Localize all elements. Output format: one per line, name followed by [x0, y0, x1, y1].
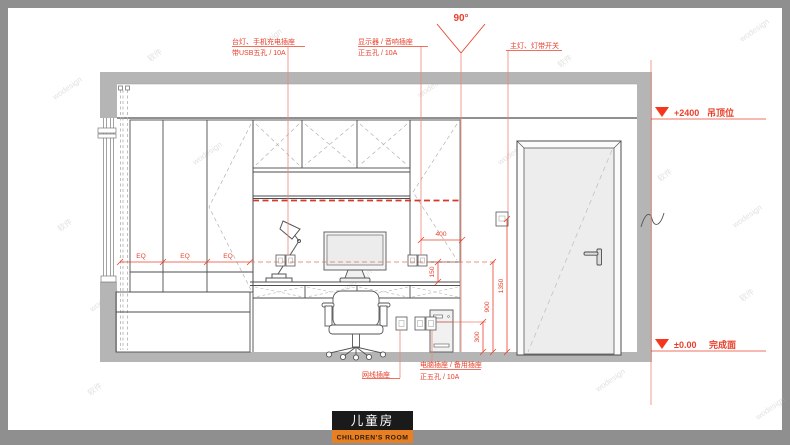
room-title-en: CHILDREN'S ROOM	[337, 435, 409, 442]
dim-label-300: 300	[474, 331, 481, 342]
ceiling-slab	[100, 72, 652, 84]
dim-label-150: 150	[429, 266, 436, 277]
eq-label: EQ	[223, 253, 233, 260]
door	[517, 141, 621, 355]
dim-label-1350: 1350	[498, 278, 505, 293]
cad-elevation-screenshot: wodesign 软件 wodesign wodesign 软件 wodesig…	[0, 0, 790, 445]
level-floor-label: 完成面	[709, 339, 736, 350]
callout-computer-socket-line2: 正五孔 / 10A	[420, 373, 460, 381]
left-wall-lower	[100, 282, 117, 352]
computer-tower-icon	[430, 310, 453, 352]
level-ceiling-label: 吊顶位	[707, 107, 734, 118]
callout-monitor-socket-line1: 显示器 / 音响插座	[358, 37, 413, 46]
callout-monitor-socket-line2: 正五孔 / 10A	[358, 49, 398, 57]
socket-symbol-network	[396, 317, 407, 330]
callout-light-switch: 主灯、灯带开关	[510, 41, 559, 50]
switch-symbol	[496, 212, 508, 226]
eq-label: EQ	[136, 253, 146, 260]
right-wall	[637, 72, 652, 362]
dim-label-900: 900	[484, 301, 491, 312]
callout-lamp-socket-line1: 台灯、手机充电插座	[232, 37, 295, 46]
title-block: 儿童房 CHILDREN'S ROOM	[332, 411, 413, 443]
level-ceiling-value: +2400	[674, 108, 699, 118]
left-wall-upper	[100, 72, 117, 118]
eq-label: EQ	[180, 253, 190, 260]
callout-computer-socket-line1: 电脑插座 / 备用插座	[420, 360, 482, 369]
dim-label-400: 400	[435, 231, 446, 238]
callout-lamp-socket-line2: 带USB五孔 / 10A	[232, 49, 286, 57]
elevation-drawing: wodesign 软件 wodesign wodesign 软件 wodesig…	[0, 0, 790, 445]
angle-label: 90°	[453, 13, 468, 24]
room-title-cn: 儿童房	[351, 413, 395, 428]
level-floor-value: ±0.00	[674, 340, 696, 350]
callout-network-socket: 网线插座	[362, 370, 390, 379]
